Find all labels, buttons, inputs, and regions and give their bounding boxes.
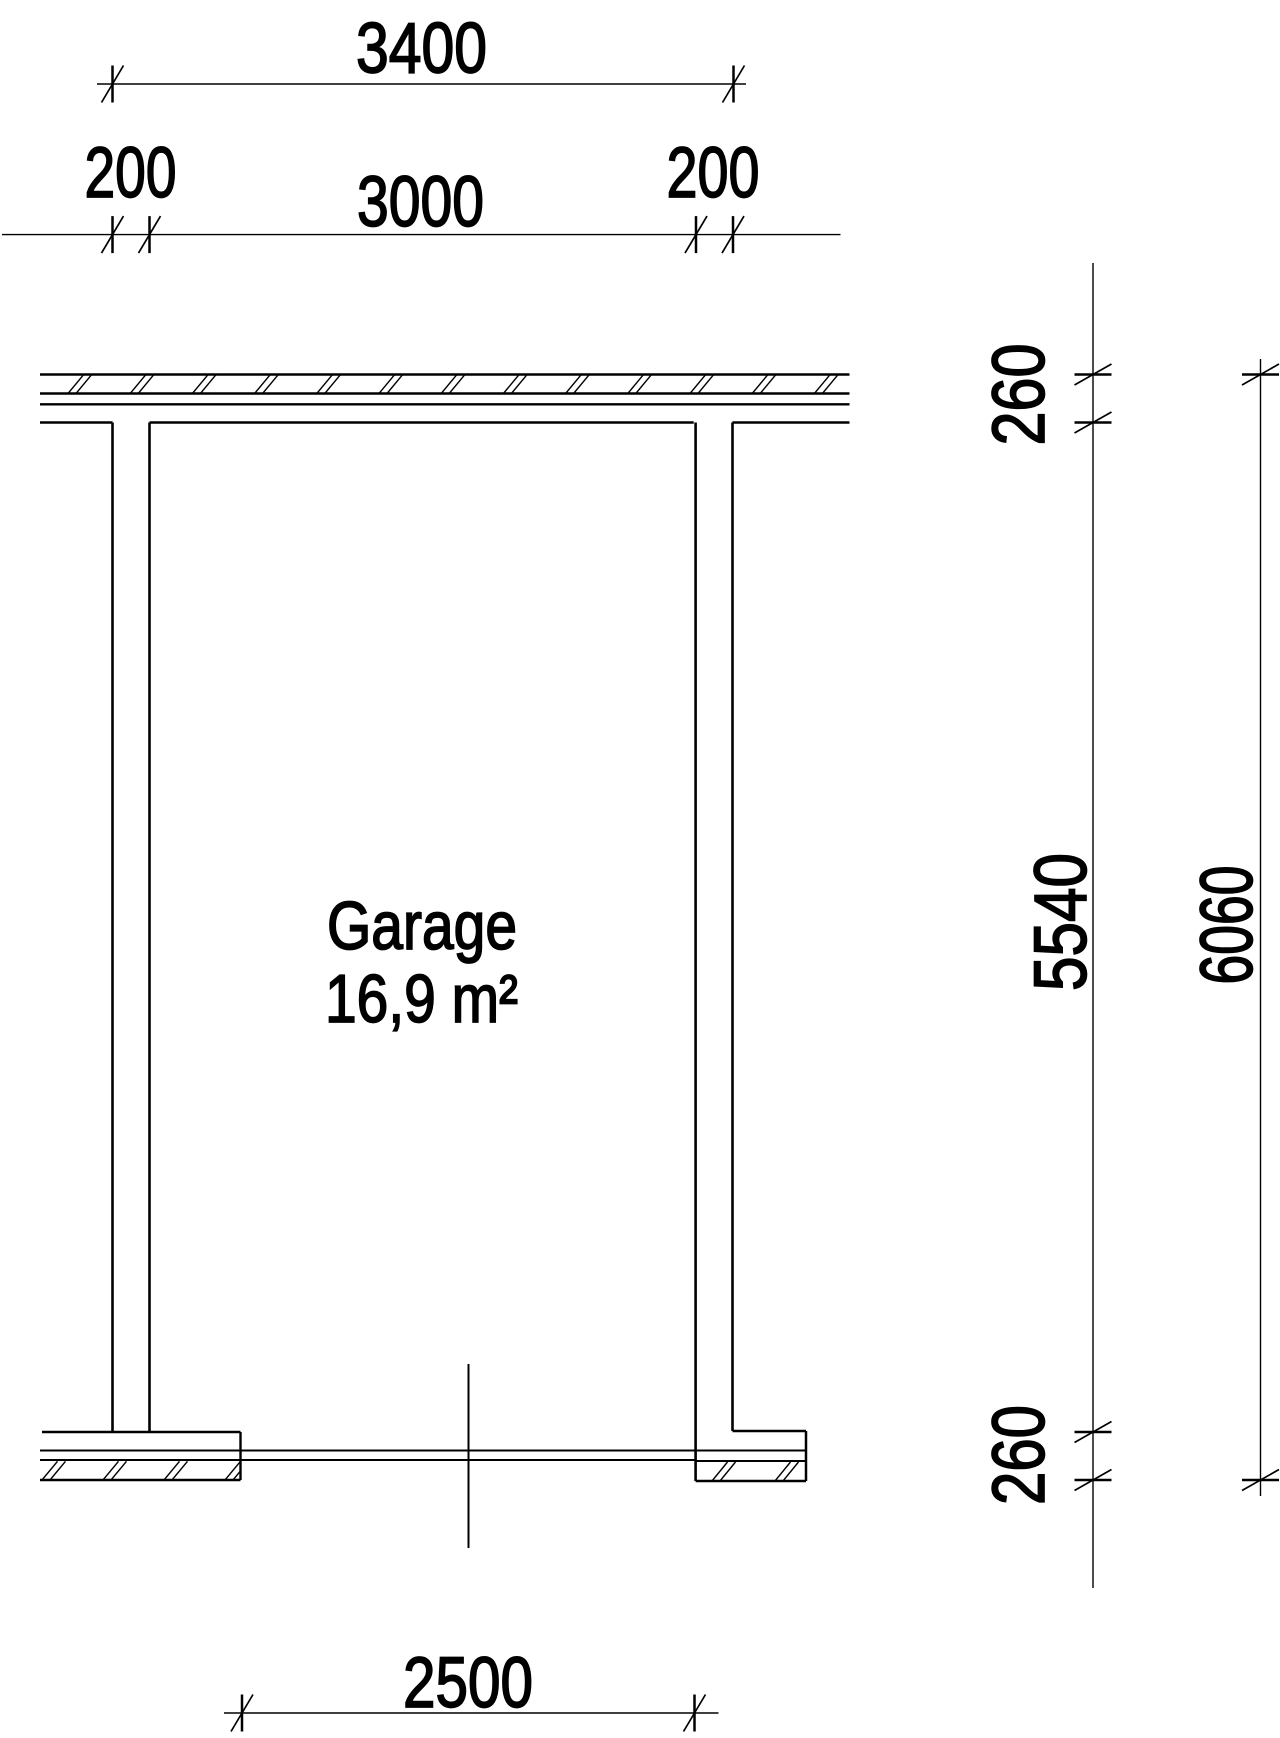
svg-text:3000: 3000: [357, 163, 484, 242]
svg-text:200: 200: [85, 134, 177, 213]
svg-text:5540: 5540: [1019, 853, 1102, 991]
svg-text:200: 200: [667, 134, 760, 213]
svg-text:260: 260: [977, 1405, 1060, 1505]
svg-text:6060: 6060: [1185, 866, 1268, 985]
svg-text:3400: 3400: [356, 10, 487, 89]
svg-text:2500: 2500: [403, 1644, 533, 1723]
svg-text:16,9 m²: 16,9 m²: [325, 961, 518, 1037]
svg-text:260: 260: [977, 344, 1060, 446]
svg-text:Garage: Garage: [327, 888, 517, 964]
